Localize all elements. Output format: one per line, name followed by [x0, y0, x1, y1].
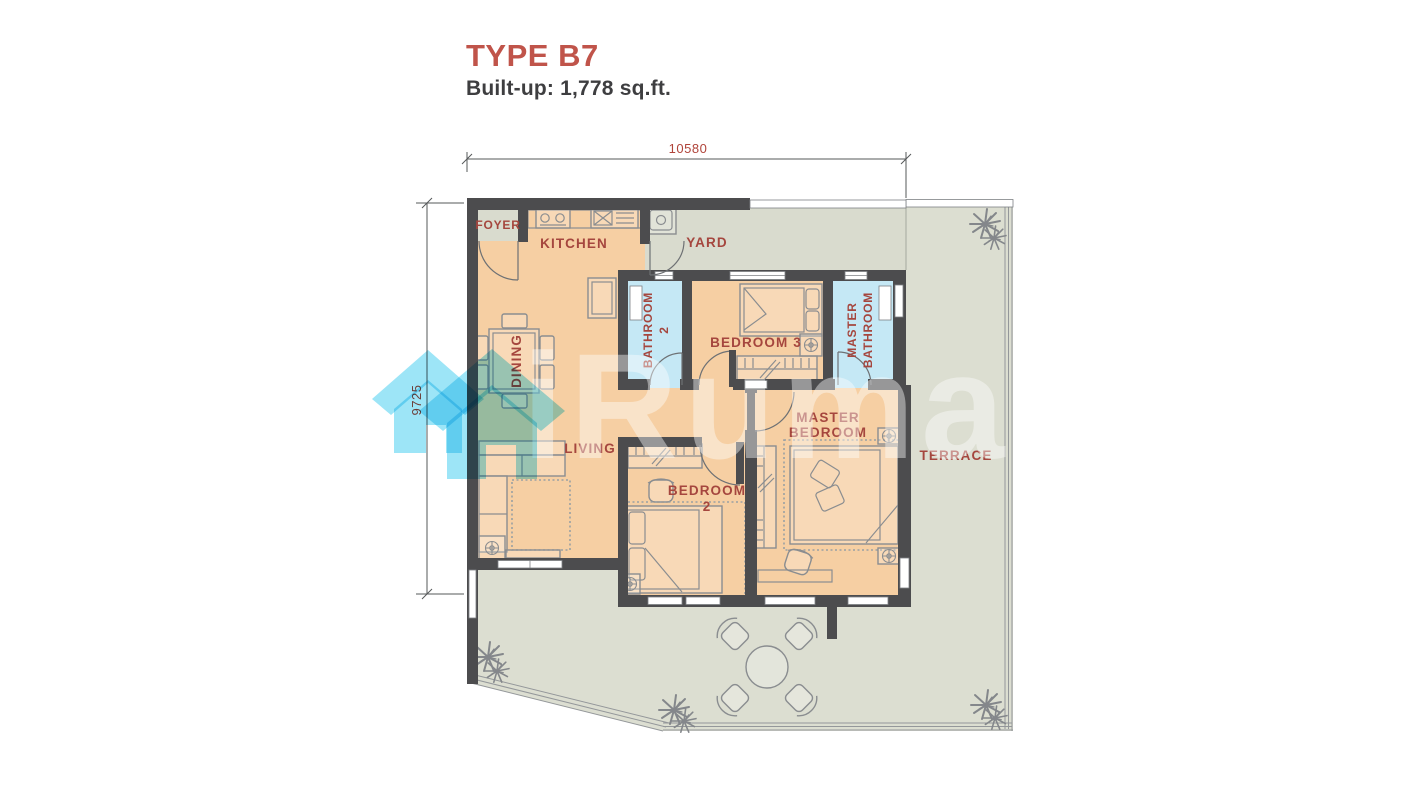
- dimension-top-value: 10580: [669, 141, 708, 156]
- washing-machine-icon: [646, 206, 676, 234]
- floorplan-canvas: FOYER KITCHEN YARD BATHROOM 2 BEDROOM 3 …: [0, 0, 1426, 802]
- watermark-brand-text: iRumah: [522, 322, 1108, 490]
- label-yard: YARD: [686, 235, 727, 250]
- label-bedroom2-line2: 2: [703, 499, 712, 514]
- sliding-door: [498, 561, 562, 569]
- sink-icon: [591, 208, 638, 228]
- window: [469, 570, 476, 618]
- tv-console-icon: [506, 550, 560, 558]
- label-kitchen: KITCHEN: [540, 236, 608, 251]
- window: [845, 272, 867, 280]
- stove-icon: [536, 209, 570, 228]
- window: [730, 272, 785, 280]
- master-bathroom-fixture: [879, 286, 891, 320]
- label-foyer: FOYER: [475, 218, 520, 232]
- terrace-top-railing: [906, 200, 1013, 208]
- master-side-table-bottom-icon: [878, 548, 899, 564]
- window: [900, 558, 909, 588]
- floorplan-page: TYPE B7 Built-up: 1,778 sq.ft.: [0, 0, 1426, 802]
- fridge-icon: [588, 278, 616, 318]
- window: [895, 285, 903, 317]
- side-table-icon: [479, 536, 505, 560]
